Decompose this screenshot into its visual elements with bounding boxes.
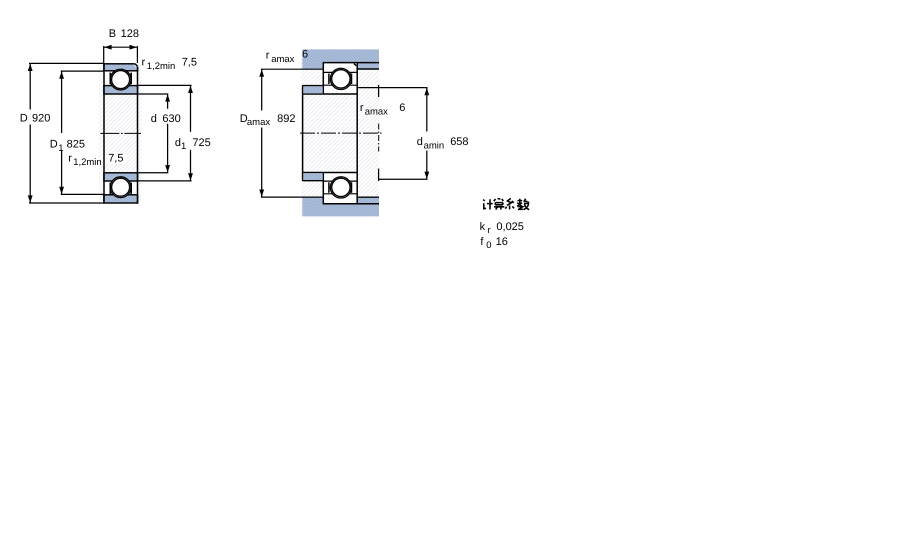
svg-text:d: d [151, 113, 157, 125]
svg-text:amin: amin [424, 140, 445, 151]
svg-text:r: r [142, 57, 146, 69]
svg-text:920: 920 [32, 113, 50, 125]
svg-text:amax: amax [365, 106, 388, 117]
svg-text:7,5: 7,5 [108, 153, 123, 165]
svg-text:0,025: 0,025 [496, 221, 524, 233]
svg-text:r: r [266, 50, 270, 62]
svg-text:658: 658 [450, 136, 468, 148]
svg-text:amax: amax [247, 117, 270, 128]
svg-text:7,5: 7,5 [182, 56, 197, 68]
svg-text:B: B [109, 28, 116, 40]
svg-text:r: r [360, 102, 364, 114]
svg-text:128: 128 [121, 28, 139, 40]
svg-text:1: 1 [181, 141, 186, 152]
svg-text:1: 1 [58, 143, 63, 154]
svg-text:725: 725 [192, 137, 210, 149]
svg-text:630: 630 [162, 113, 180, 125]
svg-text:6: 6 [302, 49, 308, 61]
svg-text:825: 825 [67, 139, 85, 151]
svg-text:d: d [417, 136, 423, 148]
svg-text:1,2min: 1,2min [147, 61, 176, 72]
svg-text:r: r [68, 153, 72, 165]
svg-text:D: D [50, 139, 58, 151]
svg-text:1,2min: 1,2min [73, 157, 102, 168]
svg-text:892: 892 [277, 113, 295, 125]
svg-text:r: r [488, 225, 491, 236]
svg-text:6: 6 [399, 102, 405, 114]
svg-text:16: 16 [496, 236, 508, 248]
svg-text:k: k [480, 221, 486, 233]
svg-text:D: D [20, 113, 28, 125]
svg-text:0: 0 [486, 240, 491, 251]
svg-text:amax: amax [271, 54, 294, 65]
